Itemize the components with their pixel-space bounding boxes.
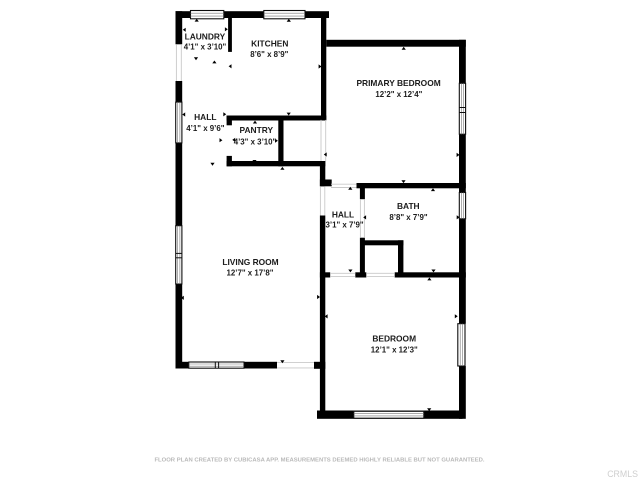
svg-text:CRMLS: CRMLS <box>607 469 638 479</box>
svg-text:4’3" x 3’10": 4’3" x 3’10" <box>234 138 277 147</box>
svg-text:12’1" x 12’3": 12’1" x 12’3" <box>371 345 418 354</box>
svg-text:4’1" x 3’10": 4’1" x 3’10" <box>184 43 227 52</box>
svg-text:4’1" x 9’6": 4’1" x 9’6" <box>186 124 224 133</box>
svg-text:12’7" x 17’8": 12’7" x 17’8" <box>227 269 274 278</box>
svg-text:BATH: BATH <box>397 201 420 211</box>
svg-text:FLOOR PLAN CREATED BY CUBICASA: FLOOR PLAN CREATED BY CUBICASA APP. MEAS… <box>154 458 484 464</box>
svg-text:HALL: HALL <box>194 112 216 122</box>
svg-text:LAUNDRY: LAUNDRY <box>185 31 226 41</box>
svg-text:PANTRY: PANTRY <box>240 125 274 135</box>
svg-text:3’1" x 7’9": 3’1" x 7’9" <box>325 220 363 229</box>
svg-text:8’8" x 7’9": 8’8" x 7’9" <box>389 213 427 222</box>
svg-text:12’2" x 12’4": 12’2" x 12’4" <box>375 90 422 99</box>
svg-text:PRIMARY BEDROOM: PRIMARY BEDROOM <box>356 78 440 88</box>
svg-text:KITCHEN: KITCHEN <box>251 39 288 49</box>
svg-text:8’6" x 8’9": 8’6" x 8’9" <box>250 50 288 59</box>
svg-text:LIVING ROOM: LIVING ROOM <box>222 257 278 267</box>
svg-text:HALL: HALL <box>332 209 354 219</box>
svg-text:BEDROOM: BEDROOM <box>372 334 416 344</box>
